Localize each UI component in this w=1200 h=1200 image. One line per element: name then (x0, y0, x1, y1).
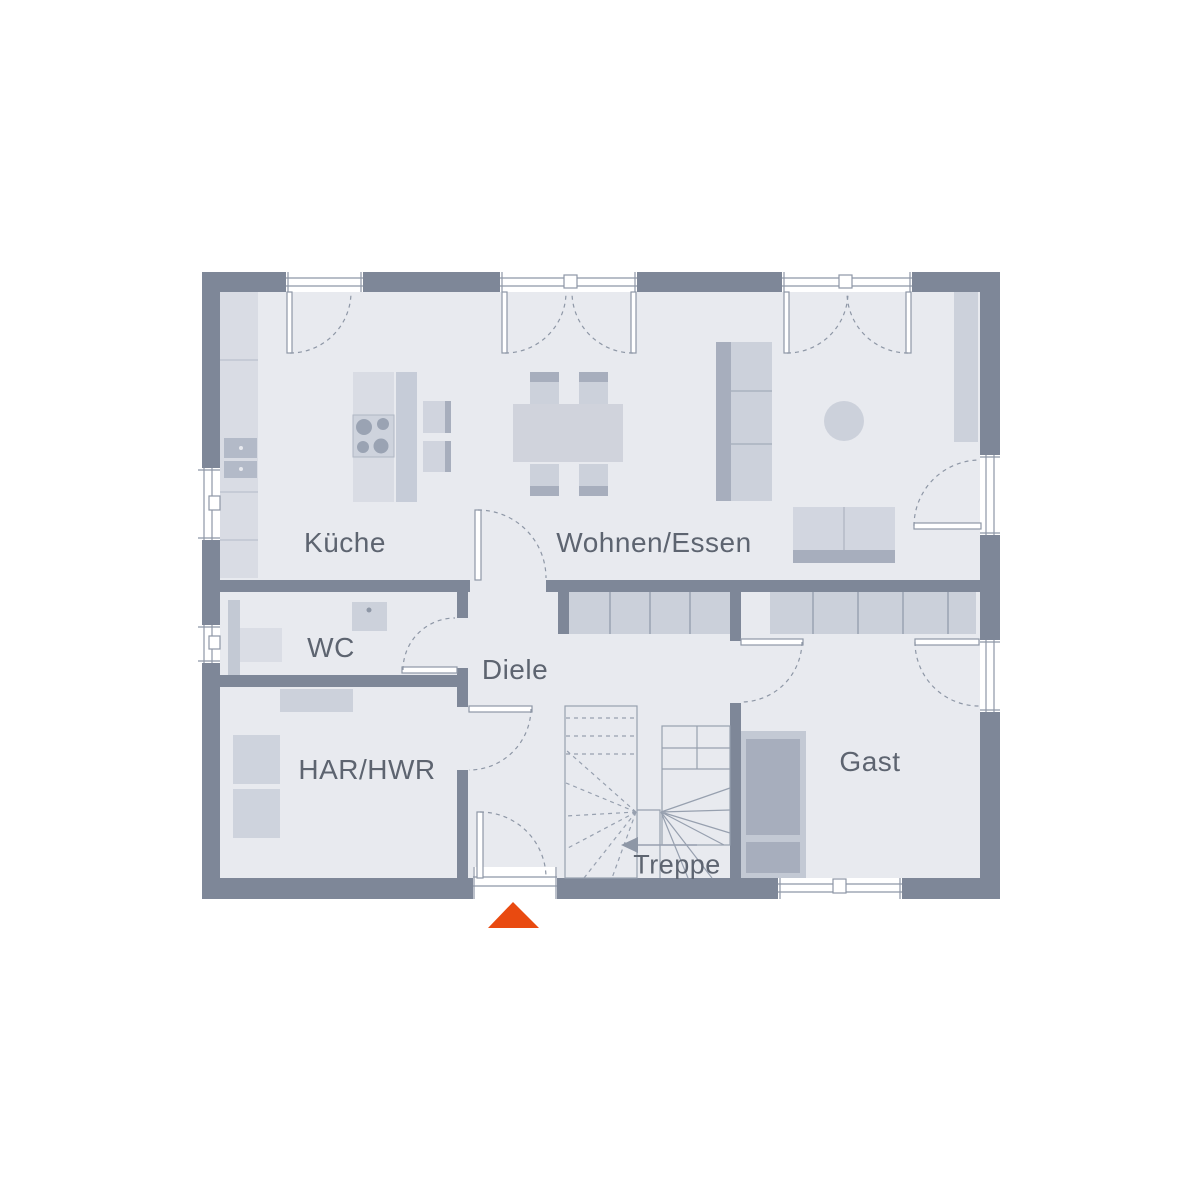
wc-counter (228, 600, 240, 675)
sideboard (954, 292, 978, 442)
window-kitchen-left (198, 468, 220, 540)
hall-closet (569, 592, 730, 634)
guest-closet (770, 592, 976, 634)
room-label-diele: Diele (482, 654, 548, 686)
floor-plan-drawing (0, 0, 1200, 1200)
dining-chair (579, 372, 608, 404)
sofa (793, 507, 895, 563)
french-door-right-top (782, 272, 912, 292)
terrace-door-living (980, 455, 1000, 535)
toilet (352, 602, 387, 631)
dining-table (513, 404, 623, 462)
room-label-har-hwr: HAR/HWR (298, 754, 435, 786)
entrance-triangle-icon (488, 902, 539, 928)
dining-chair (579, 464, 608, 496)
window-guest-bottom (778, 878, 902, 899)
washbasin (240, 628, 282, 662)
window-kitchen-top (286, 272, 363, 292)
room-label-treppe: Treppe (633, 850, 721, 881)
entrance-door-opening (473, 867, 557, 899)
dryer (233, 789, 280, 838)
room-label-wohnen-essen: Wohnen/Essen (556, 527, 751, 559)
french-door-center-top (500, 272, 637, 292)
floor-plan-page: Küche Wohnen/Essen WC Diele HAR/HWR Gast… (0, 0, 1200, 1200)
window-wc-left (198, 625, 220, 663)
terrace-door-guest (980, 640, 1000, 712)
dining-chair (530, 464, 559, 496)
room-label-gast: Gast (839, 746, 900, 778)
washing-machine (233, 735, 280, 784)
bar-stool (423, 441, 451, 472)
dining-chair (530, 372, 559, 404)
guest-wardrobe (740, 731, 806, 878)
side-table (824, 401, 864, 441)
room-label-kueche: Küche (304, 527, 386, 559)
bar-stool (423, 401, 451, 433)
kitchen-counter (220, 292, 258, 578)
room-label-wc: WC (307, 632, 355, 664)
shelf-unit (716, 342, 772, 501)
